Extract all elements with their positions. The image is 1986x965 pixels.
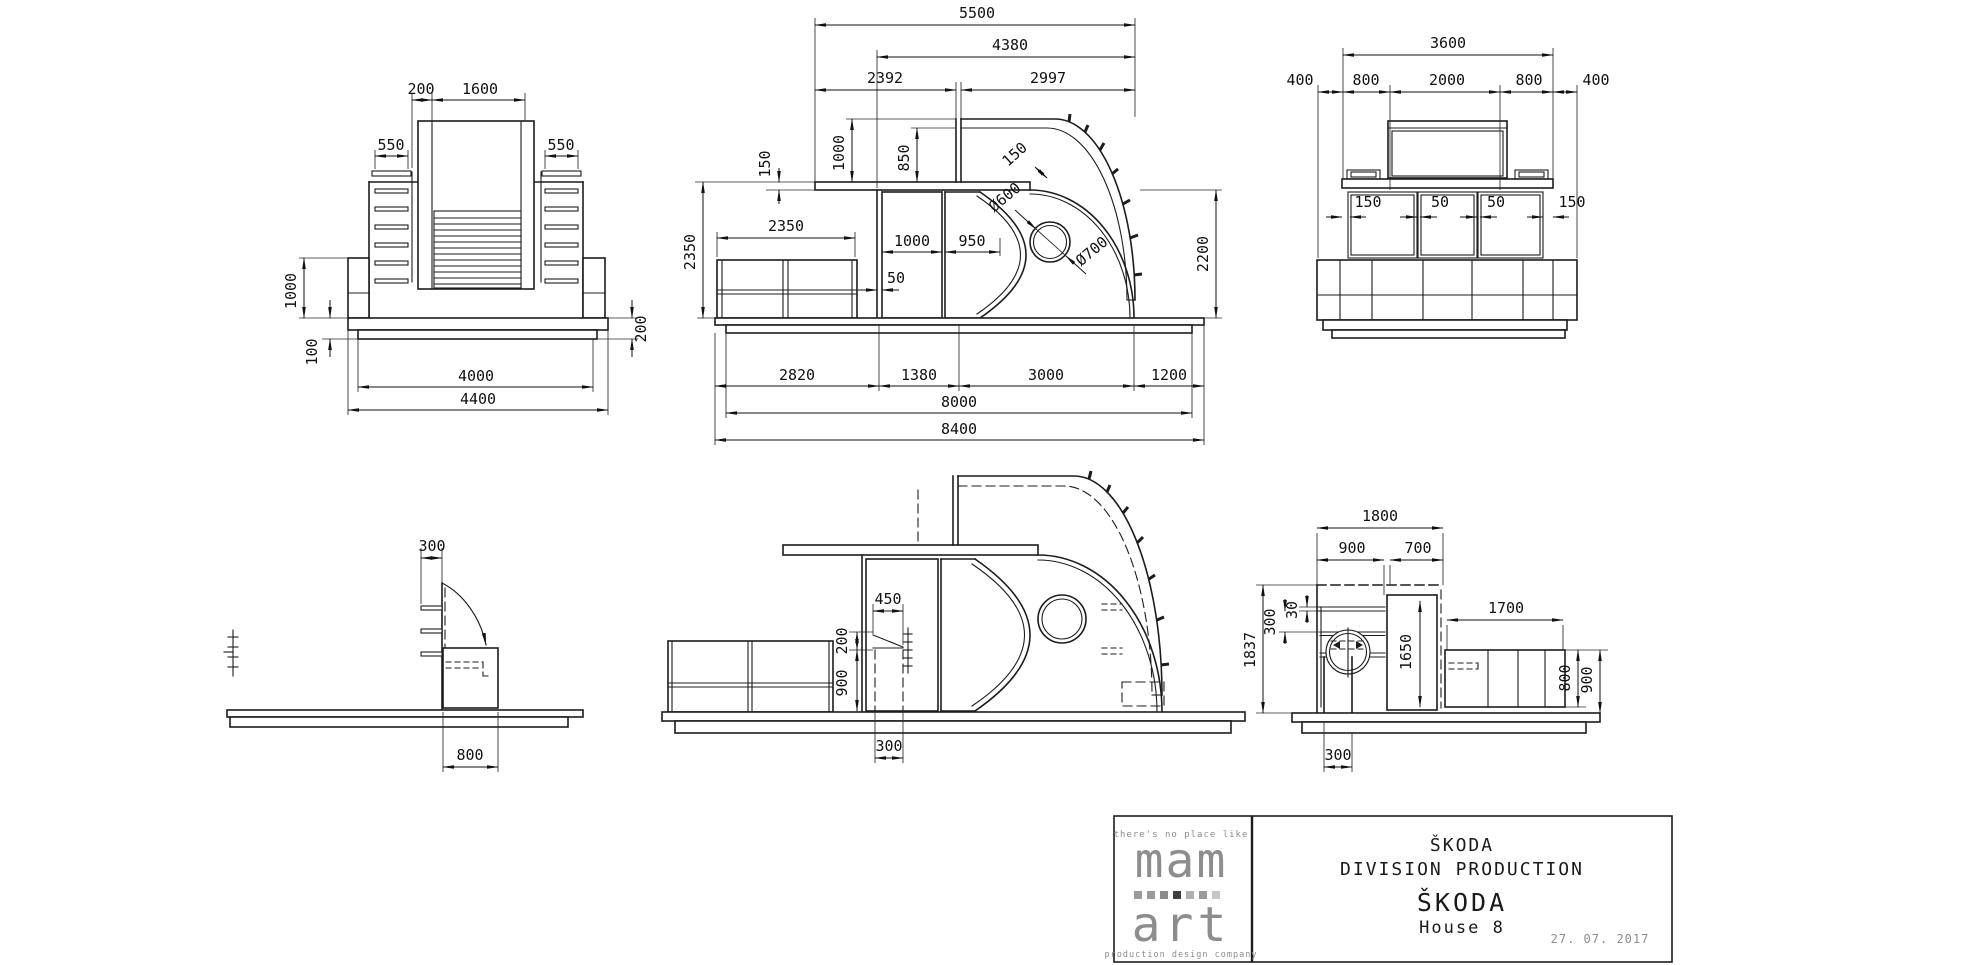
- dim-label: 800: [1352, 71, 1379, 89]
- dim-label: 1380: [901, 366, 937, 384]
- dim-label: 1000: [894, 232, 930, 250]
- dim-label: 900: [1578, 666, 1596, 693]
- dim-label: 400: [1582, 71, 1609, 89]
- dim-label: 1800: [1362, 507, 1398, 525]
- dim-label: 1200: [1151, 366, 1187, 384]
- dim-label: 150: [1354, 193, 1381, 211]
- dim-label: 2392: [867, 69, 903, 87]
- logo-word-art: art: [1132, 897, 1231, 953]
- dim-label: 200: [833, 627, 851, 654]
- dim-label: 4000: [458, 367, 494, 385]
- dim-label: Ø700: [1072, 233, 1111, 270]
- section-marker: [224, 630, 238, 676]
- dim-label: 5500: [959, 4, 995, 22]
- dim-label: 1650: [1397, 634, 1415, 670]
- dim-label: 950: [958, 232, 985, 250]
- drawing-date: 27. 07. 2017: [1551, 932, 1650, 946]
- dim-label: 50: [887, 269, 905, 287]
- dim-label: 8000: [941, 393, 977, 411]
- dim-label: 4380: [992, 36, 1028, 54]
- dim-label: 700: [1404, 539, 1431, 557]
- dim-label: 2000: [1429, 71, 1465, 89]
- dim-label: 300: [418, 537, 445, 555]
- right-ladder: [541, 171, 581, 283]
- drawing-sheet: 200 1600 550 550 1000 100 200 4000 4400: [0, 0, 1986, 965]
- logo-word-mam: mam: [1135, 833, 1228, 889]
- porthole: [1038, 595, 1086, 643]
- dim-label: 2200: [1194, 236, 1212, 272]
- dim-label: 450: [874, 590, 901, 608]
- dim-label: 1000: [282, 273, 300, 309]
- project-name: ŠKODA: [1417, 887, 1507, 917]
- logo-subtitle: production design company: [1105, 950, 1258, 960]
- dim-label: 3000: [1028, 366, 1064, 384]
- cad-canvas: 200 1600 550 550 1000 100 200 4000 4400: [0, 0, 1986, 965]
- right-side-view: 1800 900 700 30 300 1650 1700 800 900 30…: [1241, 507, 1608, 772]
- canopy-pegs: [1089, 471, 1169, 665]
- company-name: ŠKODA: [1430, 834, 1494, 856]
- dim-label: 50: [1431, 193, 1449, 211]
- department-name: DIVISION PRODUCTION: [1340, 859, 1584, 880]
- rear-elevation-view: 3600 400 800 2000 800 400 150 50 50 150: [1286, 34, 1609, 338]
- dim-label: 800: [1515, 71, 1542, 89]
- dim-label: 2997: [1030, 69, 1066, 87]
- dim-label: 400: [1286, 71, 1313, 89]
- side-elevation-view: 5500 4380 2392 2997 1000 850 150 150 Ø60…: [681, 4, 1222, 445]
- dim-label: 2350: [768, 217, 804, 235]
- left-ladder: [372, 171, 412, 283]
- dim-label: 150: [1558, 193, 1585, 211]
- dim-label: 150: [756, 150, 774, 177]
- dim-label: 50: [1487, 193, 1505, 211]
- dim-label: 550: [377, 136, 404, 154]
- dim-label: 30: [1283, 601, 1301, 619]
- section-view: 450 200 900 300: [662, 471, 1245, 763]
- dim-label: 1837: [1241, 632, 1259, 668]
- item-name: House 8: [1419, 918, 1505, 938]
- dim-label: 1700: [1488, 599, 1524, 617]
- dim-label: 850: [895, 144, 913, 171]
- dim-label: 4400: [460, 390, 496, 408]
- dim-label: 1000: [830, 135, 848, 171]
- dim-label: 800: [1556, 664, 1574, 691]
- left-side-view: 300 800: [224, 537, 583, 772]
- dim-label: 200: [407, 80, 434, 98]
- dim-label: 300: [1324, 746, 1351, 764]
- dim-label: 900: [833, 669, 851, 696]
- title-block: there's no place like mam art production…: [1105, 816, 1672, 962]
- front-elevation-view: 200 1600 550 550 1000 100 200 4000 4400: [282, 80, 650, 415]
- dim-label: 900: [1338, 539, 1365, 557]
- dim-label: 150: [999, 139, 1031, 171]
- dim-label: 200: [632, 315, 650, 342]
- dim-label: 800: [456, 746, 483, 764]
- dim-label: 1600: [462, 80, 498, 98]
- dim-label: 8400: [941, 420, 977, 438]
- dim-label: 2820: [779, 366, 815, 384]
- dim-label: 300: [875, 737, 902, 755]
- dim-label: 100: [303, 338, 321, 365]
- dim-label: 3600: [1430, 34, 1466, 52]
- dim-label: 2350: [681, 234, 699, 270]
- dim-label: 300: [1261, 608, 1279, 635]
- dim-label: 550: [547, 136, 574, 154]
